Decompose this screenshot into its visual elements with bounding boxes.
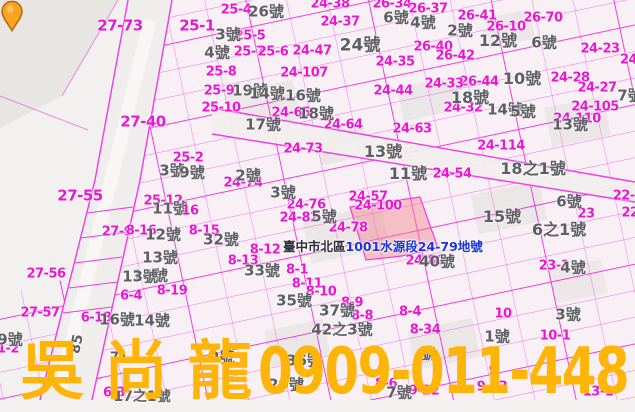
house-number-label: 7號 <box>386 386 411 401</box>
parcel-number-label: 25-9 <box>204 85 235 98</box>
parcel-number-label: 27-57 <box>20 307 59 320</box>
map-canvas[interactable]: 27-7325-127-4027-5527-5627-5725-424-3826… <box>0 0 635 400</box>
parcel-number-label: 26-44 <box>459 76 498 89</box>
parcel-number-label: 24-107 <box>280 67 328 80</box>
house-number-label: 11號 <box>389 166 427 182</box>
house-number-label: 6號 <box>531 36 556 51</box>
parcel-number-label: 9 <box>489 365 498 378</box>
parcel-number-label: 10 <box>494 308 511 321</box>
house-number-label: 17號 <box>245 118 281 133</box>
parcel-number-label: 27-73 <box>97 19 142 34</box>
house-number-label: 18之1號 <box>500 161 565 177</box>
house-number-label: 15號 <box>483 209 521 225</box>
house-number-label: 6之1號 <box>532 222 586 238</box>
house-number-label: 9號 <box>0 333 23 348</box>
house-number-label: 40號 <box>419 255 455 270</box>
house-number-label: 3號 <box>215 28 240 43</box>
parcel-number-label: 9-23 <box>477 381 508 394</box>
house-number-label: 3號 <box>270 186 295 201</box>
parcel-number-label: 27-56 <box>26 268 65 281</box>
parcel-number-label: 24-44 <box>373 85 412 98</box>
parcel-number-label: 24-38 <box>310 0 349 11</box>
house-number-label: 4號 <box>204 46 229 61</box>
parcel-number-label: 22 <box>621 207 635 220</box>
house-number-label: 2號 <box>447 24 472 39</box>
house-number-label: 13號 <box>552 118 588 133</box>
parcel-number-label: 6-4 <box>120 290 142 303</box>
location-callout: 臺中市北區1001水源段24-79地號 <box>283 236 483 255</box>
house-number-label: 7號 <box>617 89 635 104</box>
parcel-number-label: 25-6 <box>258 46 289 59</box>
house-number-label: 32號 <box>203 233 239 248</box>
house-number-label: 10號 <box>503 71 541 87</box>
parcel-number-label: 25-8 <box>206 66 237 79</box>
parcel-number-label: 24-47 <box>292 45 331 58</box>
house-number-label: 2號 <box>209 351 234 366</box>
house-number-label: 3號 <box>555 308 580 323</box>
house-number-label: 17之1號 <box>113 390 170 404</box>
house-number-label: 6號 <box>383 11 408 26</box>
parcel-number-label: 25-1 <box>179 19 215 34</box>
house-number-label: 13號 <box>122 270 158 285</box>
parcel-number-label: 25-10 <box>201 102 240 115</box>
house-number-label: 24號 <box>340 38 381 55</box>
house-number-label: 5號 <box>311 210 336 225</box>
house-number-label: 號 <box>420 347 435 362</box>
location-pin-icon[interactable] <box>0 0 24 33</box>
house-number-label: 36號 <box>286 354 322 369</box>
parcel-number-label: 16 <box>181 205 198 218</box>
house-number-label: 26號 <box>248 5 284 20</box>
parcel-number-label: 22-6 <box>613 190 635 203</box>
house-number-label: 16號 <box>285 89 321 104</box>
parcel-number-label: 8-34 <box>410 324 441 337</box>
callout-district: 臺中市北區 <box>283 239 346 254</box>
house-number-label: 42之3號 <box>311 323 372 338</box>
parcel-number-label: 24-100 <box>354 200 402 213</box>
house-number-label: 35號 <box>276 294 312 309</box>
parcel-number-label: 24-27 <box>577 82 616 95</box>
house-number-label: 18號 <box>451 90 489 106</box>
house-number-label: 33號 <box>244 264 280 279</box>
house-number-label: 14號 <box>249 87 285 102</box>
house-number-label: 6號 <box>556 195 581 210</box>
house-number-label: 4號 <box>410 16 435 31</box>
parcel-number-label: 8-19 <box>157 285 188 298</box>
parcel-number-label: 8-4 <box>399 306 421 319</box>
house-number-label: 1號 <box>484 330 509 345</box>
house-number-label: 16號 <box>99 313 135 328</box>
house-number-label: 13號 <box>364 144 402 160</box>
house-number-label: 85 <box>68 333 86 355</box>
house-number-label: 14號 <box>134 314 170 329</box>
parcel-number-label: 26-70 <box>523 12 562 25</box>
parcel-number-label: 27-40 <box>120 115 165 130</box>
parcel-number-label: 25-4 <box>221 4 252 17</box>
house-number-label: 71 <box>110 352 128 365</box>
parcel-number-label: 13-1 <box>583 386 614 399</box>
parcel-number-label: 9-22 <box>409 385 440 398</box>
parcel-number-label: 24- <box>620 54 635 67</box>
house-number-label: 12號 <box>145 228 181 243</box>
house-number-label: 12號 <box>479 33 517 49</box>
parcel-number-label: 24-73 <box>283 143 322 156</box>
house-number-label: 37號 <box>319 304 355 319</box>
parcel-number-label: 24-35 <box>375 56 414 69</box>
parcel-number-label: 26-42 <box>435 50 474 63</box>
parcel-number-label: 24-114 <box>477 140 525 153</box>
house-number-label: 13號 <box>142 251 178 266</box>
house-number-label: 9號 <box>179 166 204 181</box>
parcel-number-label: 27-55 <box>57 189 102 204</box>
parcel-number-label: 24-63 <box>392 123 431 136</box>
house-number-label: 2號 <box>235 169 260 184</box>
parcel-number-label: 24-54 <box>432 168 471 181</box>
parcel-number-label: 8-1 <box>286 264 308 277</box>
callout-lot-number: 1001水源段24-79地號 <box>346 239 483 254</box>
house-number-label: 29號 <box>268 378 304 393</box>
house-number-label: 18號 <box>298 107 334 122</box>
house-number-label: 5號 <box>510 105 535 120</box>
parcel-number-label: 10-1 <box>540 330 571 343</box>
parcel-number-label: 24-23 <box>580 43 619 56</box>
parcel-number-label: 24-37 <box>320 16 359 29</box>
house-number-label: 4號 <box>560 261 585 276</box>
